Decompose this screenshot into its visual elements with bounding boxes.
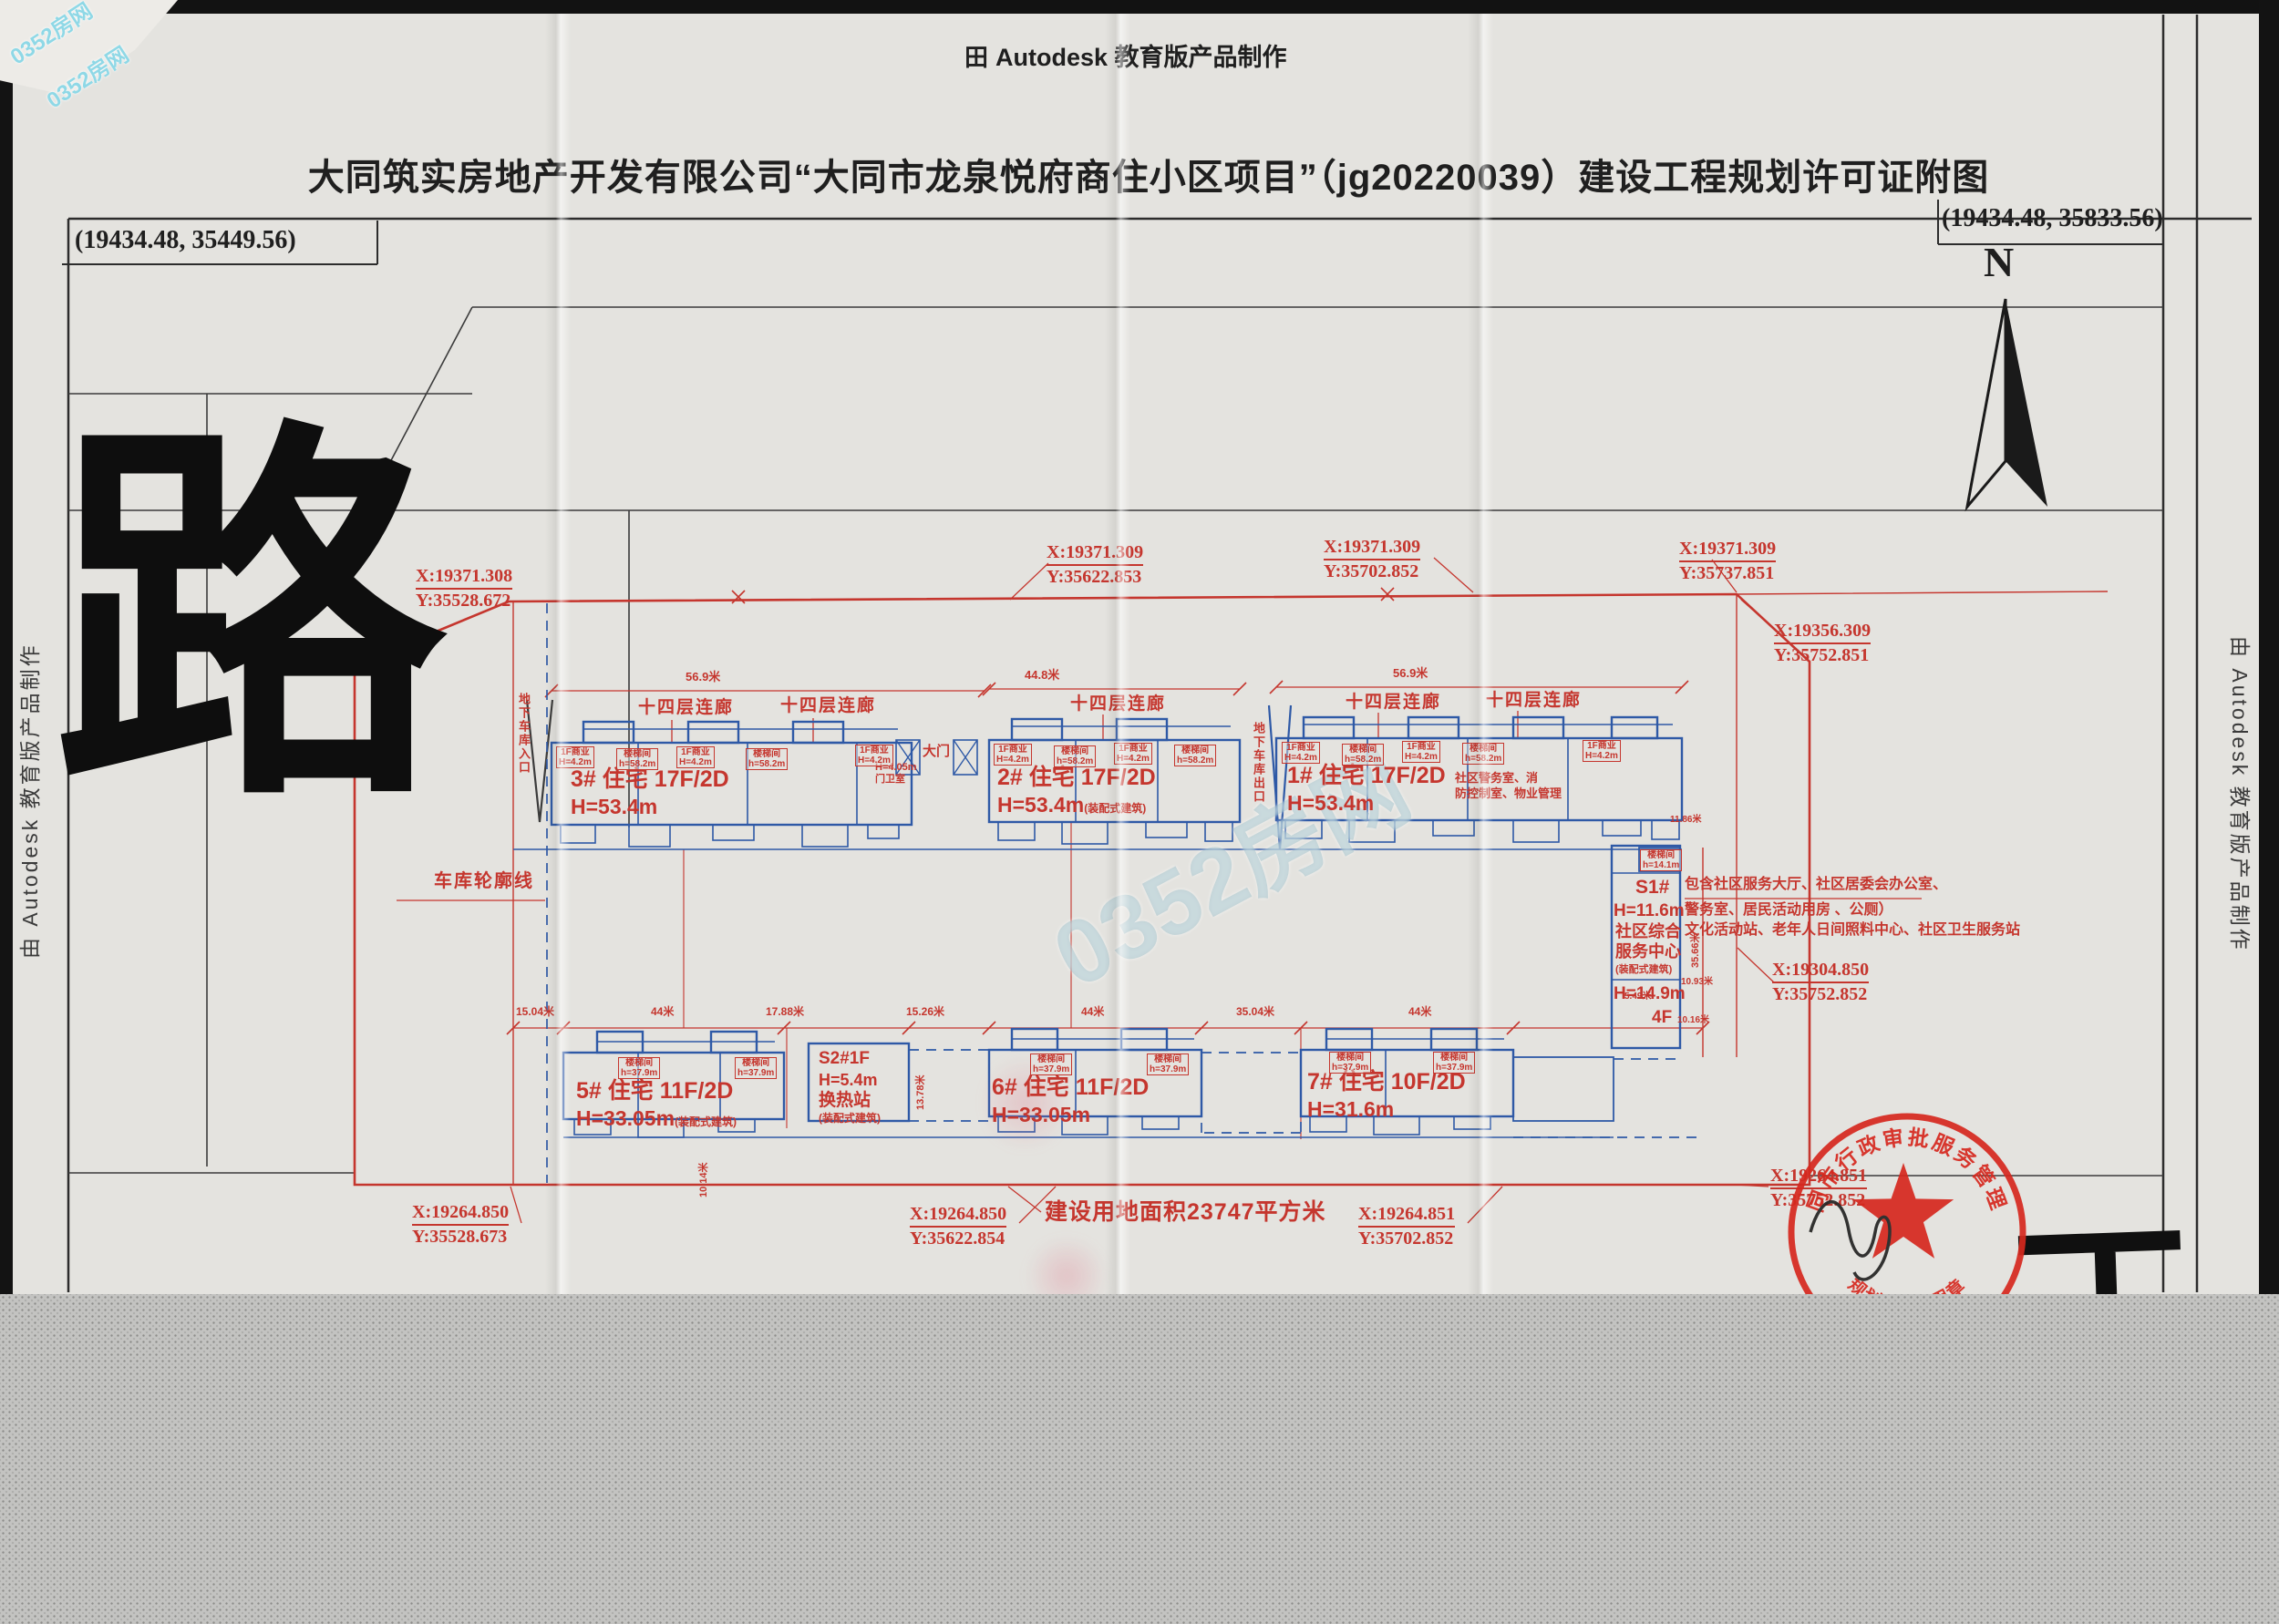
stamp-star-icon (1853, 1163, 1954, 1259)
scan-edge-left (0, 80, 13, 1294)
stamp-arc-top-text: 大同市行政审批服务管理局 (0, 0, 2011, 1215)
stamp-arc-bottom-text: 规划许可专用章 (1844, 1274, 1970, 1294)
scan-edge-top (0, 0, 2279, 14)
approval-stamp-seal: 大同市行政审批服务管理局 规划许可专用章 (0, 0, 2279, 1294)
scanned-permit-sheet: 大同筑实房地产开发有限公司“大同市龙泉悦府商住小区项目”（jg20220039）… (0, 0, 2279, 1624)
scan-edge-right (2259, 0, 2279, 1294)
svg-text:规划许可专用章: 规划许可专用章 (1844, 1274, 1970, 1294)
scanner-bed-background (0, 1294, 2279, 1624)
svg-text:大同市行政审批服务管理局: 大同市行政审批服务管理局 (0, 0, 2011, 1215)
